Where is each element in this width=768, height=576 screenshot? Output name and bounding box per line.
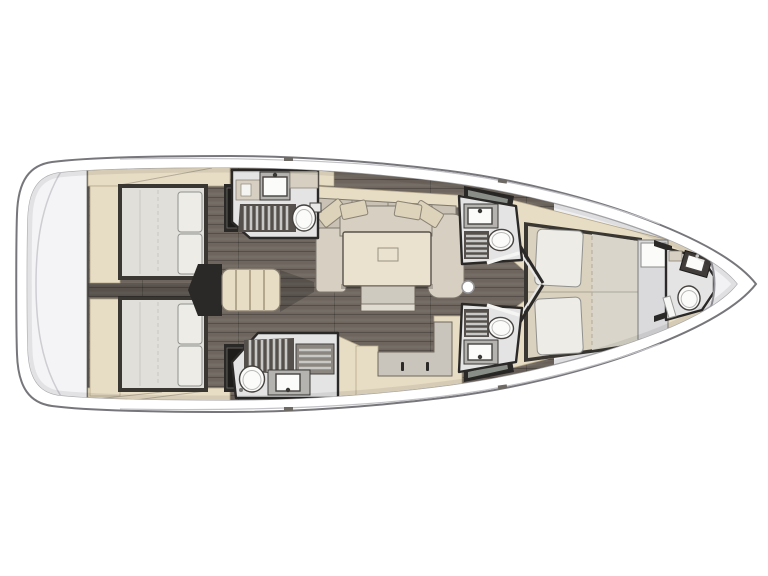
cleat-top-aft <box>284 157 293 161</box>
handle <box>401 362 404 371</box>
shelf <box>669 251 682 261</box>
sink <box>268 370 310 395</box>
pillow <box>178 192 202 232</box>
saloon-table <box>341 232 433 289</box>
pillow <box>535 297 584 355</box>
cabinet-left <box>90 299 120 396</box>
salon-bench <box>361 286 415 311</box>
shower-grate <box>464 231 489 259</box>
aft-head-bottom <box>232 333 338 398</box>
pillow <box>178 346 202 386</box>
handle <box>426 362 429 371</box>
shower-grate <box>464 309 489 337</box>
cabinet-left <box>90 186 120 283</box>
floor-plan-svg: Sailing yacht interior layout plan — top… <box>0 0 768 576</box>
mast-step <box>462 281 474 293</box>
v-berth <box>528 226 638 358</box>
double-berth <box>122 188 204 276</box>
yacht-floor-plan: Sailing yacht interior layout plan — top… <box>0 0 768 576</box>
cleat-bottom-aft <box>284 407 293 411</box>
aft-head-top <box>232 170 321 238</box>
sink <box>464 204 498 228</box>
toilet <box>239 366 265 392</box>
sink <box>260 172 290 200</box>
double-berth <box>122 300 204 388</box>
sink <box>464 340 498 364</box>
soap-tray <box>241 184 251 196</box>
shower-grate <box>238 204 296 232</box>
